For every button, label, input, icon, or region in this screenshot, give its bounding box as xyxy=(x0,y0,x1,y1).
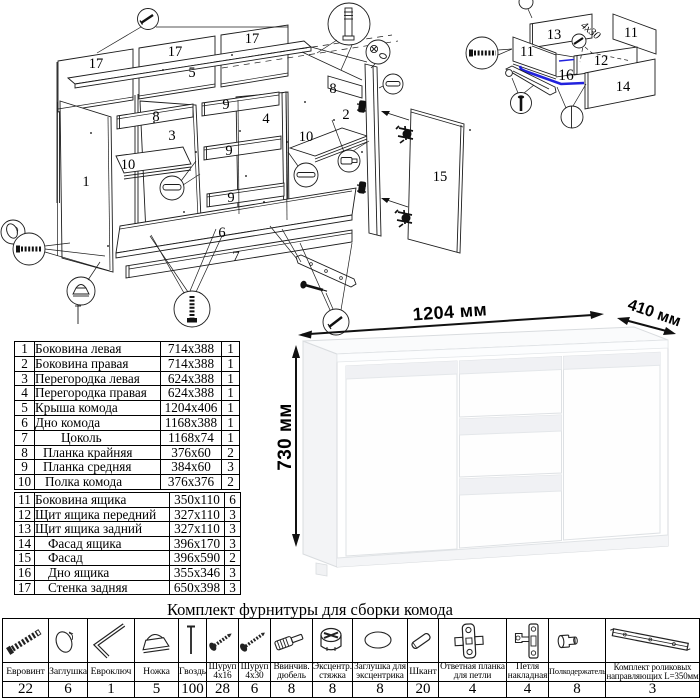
svg-text:5: 5 xyxy=(188,65,195,81)
svg-text:9: 9 xyxy=(225,143,232,159)
svg-text:13: 13 xyxy=(547,27,562,43)
svg-text:16: 16 xyxy=(558,67,574,84)
svg-text:17: 17 xyxy=(245,31,260,47)
svg-text:410 мм: 410 мм xyxy=(626,296,683,330)
svg-text:15: 15 xyxy=(433,169,448,185)
svg-text:9: 9 xyxy=(227,190,234,206)
svg-text:17: 17 xyxy=(168,44,183,60)
svg-text:2: 2 xyxy=(342,107,349,123)
svg-text:11: 11 xyxy=(624,25,638,41)
svg-text:730 мм: 730 мм xyxy=(275,403,296,471)
svg-text:9: 9 xyxy=(222,97,229,113)
svg-text:10: 10 xyxy=(121,157,136,173)
svg-text:1: 1 xyxy=(82,174,89,190)
svg-text:11: 11 xyxy=(520,44,534,60)
svg-text:7: 7 xyxy=(232,249,239,265)
svg-text:1204 мм: 1204 мм xyxy=(412,299,488,324)
svg-text:14: 14 xyxy=(616,79,631,95)
svg-text:8: 8 xyxy=(152,109,159,125)
svg-text:6: 6 xyxy=(218,225,225,241)
svg-text:12: 12 xyxy=(594,53,609,69)
svg-text:3: 3 xyxy=(168,128,175,144)
svg-text:8: 8 xyxy=(329,81,336,97)
svg-text:10: 10 xyxy=(299,129,314,145)
svg-text:4: 4 xyxy=(262,111,270,127)
svg-text:17: 17 xyxy=(89,56,104,72)
